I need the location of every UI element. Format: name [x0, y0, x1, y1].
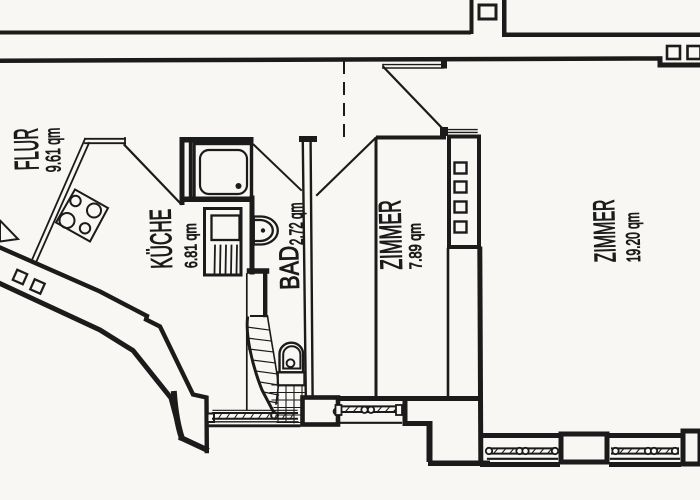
- svg-text:ZIMMER: ZIMMER: [588, 199, 623, 263]
- svg-text:KÜCHE: KÜCHE: [145, 208, 180, 269]
- svg-text:6.81 qm: 6.81 qm: [182, 223, 201, 268]
- svg-text:BAD: BAD: [275, 245, 306, 290]
- svg-text:9.61 qm: 9.61 qm: [41, 127, 65, 172]
- svg-text:FLUR: FLUR: [7, 128, 46, 171]
- svg-text:7.89 qm: 7.89 qm: [406, 223, 426, 270]
- svg-text:ZIMMER: ZIMMER: [373, 200, 409, 271]
- svg-text:19.20 qm: 19.20 qm: [623, 212, 645, 262]
- svg-text:2.72 qm: 2.72 qm: [286, 202, 308, 245]
